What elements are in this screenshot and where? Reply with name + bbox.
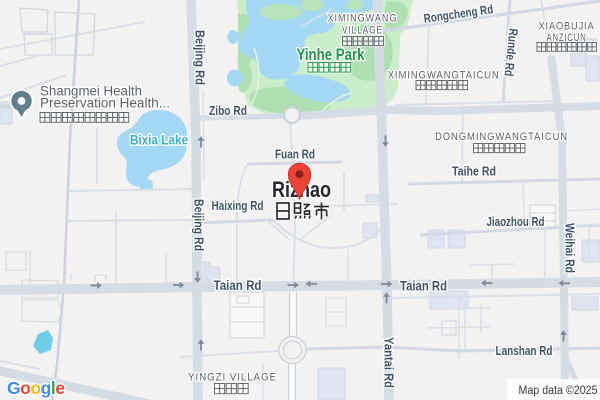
svg-text:Fuan Rd: Fuan Rd [275, 148, 315, 162]
svg-text:Taian Rd: Taian Rd [400, 279, 447, 294]
svg-text:Yantai Rd: Yantai Rd [382, 337, 396, 388]
svg-text:Zibo Rd: Zibo Rd [209, 104, 247, 118]
svg-text:Beijing Rd: Beijing Rd [193, 30, 207, 85]
svg-text:Beijing Rd: Beijing Rd [192, 199, 206, 251]
svg-text:XIMINGWANG: XIMINGWANG [328, 13, 398, 25]
svg-text:Taian Rd: Taian Rd [214, 278, 262, 293]
svg-text:VILLAGE: VILLAGE [342, 25, 383, 37]
svg-text:Taihe Rd: Taihe Rd [452, 165, 496, 179]
svg-text:Google: Google [7, 378, 65, 398]
svg-text:Haixing Rd: Haixing Rd [212, 199, 264, 213]
svg-text:Jiaozhou Rd: Jiaozhou Rd [487, 214, 545, 229]
svg-text:DONGMINGWANGTAICUN: DONGMINGWANGTAICUN [435, 131, 568, 143]
svg-text:XIAOBUJIA: XIAOBUJIA [539, 21, 595, 33]
svg-text:Weihai Rd: Weihai Rd [563, 223, 577, 273]
svg-text:Bixia Lake: Bixia Lake [130, 133, 188, 148]
svg-text:Preservation Health...: Preservation Health... [40, 96, 170, 111]
svg-text:Lanshan Rd: Lanshan Rd [496, 344, 553, 358]
svg-text:YINGZI VILLAGE: YINGZI VILLAGE [188, 372, 277, 384]
svg-text:Map data ©2025: Map data ©2025 [519, 385, 598, 397]
